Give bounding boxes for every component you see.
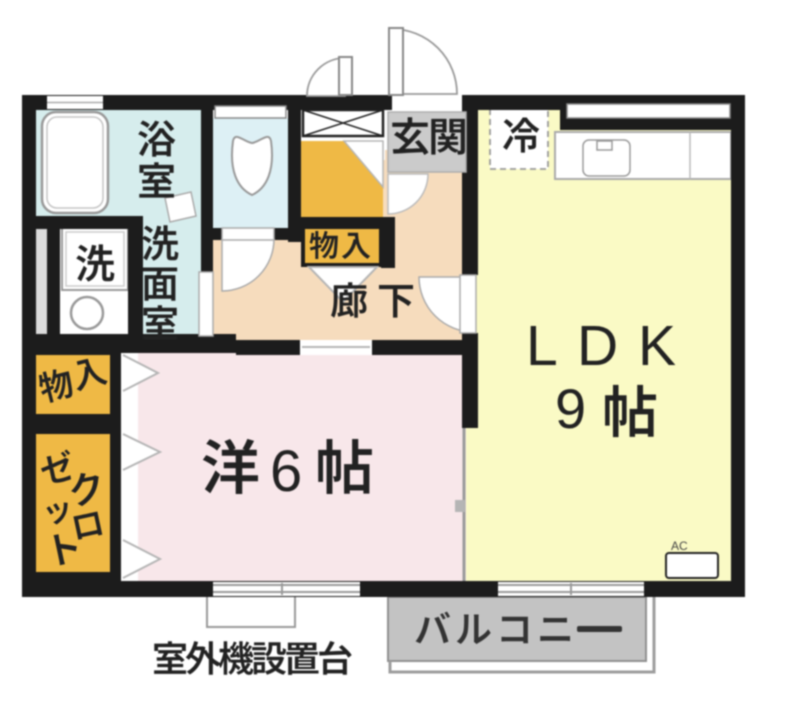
svg-text:6: 6 bbox=[270, 439, 302, 504]
svg-text:D: D bbox=[577, 314, 618, 378]
svg-text:K: K bbox=[638, 314, 676, 378]
svg-text:L: L bbox=[526, 314, 558, 378]
svg-text:9: 9 bbox=[555, 377, 586, 440]
svg-text:AC: AC bbox=[671, 539, 688, 553]
